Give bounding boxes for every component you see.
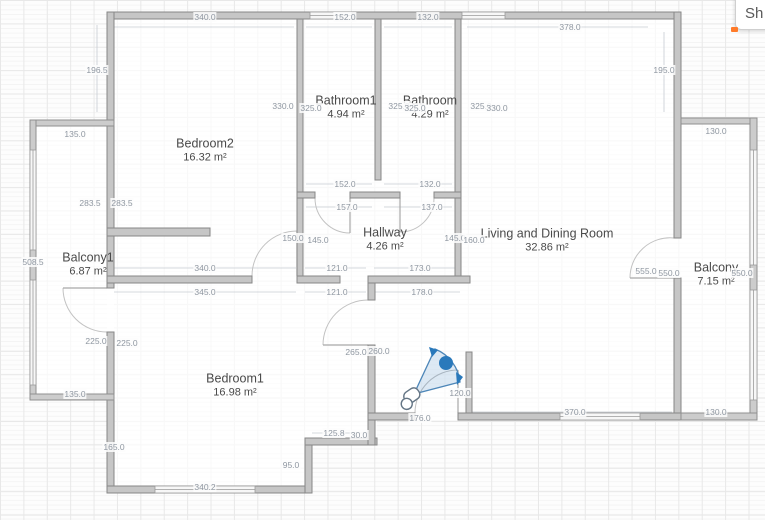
dimension-label[interactable]: 378.0 [558, 22, 581, 32]
dimension-label[interactable]: 137.0 [420, 202, 443, 212]
dimension-label[interactable]: 550.0 [657, 268, 680, 278]
dimension-label[interactable]: 121.0 [325, 263, 348, 273]
dimension-label[interactable]: 330.0 [485, 103, 508, 113]
floorplan-editor-canvas[interactable]: Bedroom2 16.32 m² Bathroom1 4.94 m² Bath… [0, 0, 765, 520]
dimension-label[interactable]: 176.0 [408, 413, 431, 423]
dimension-label[interactable]: 178.0 [410, 287, 433, 297]
dimension-label[interactable]: 125.8 [322, 428, 345, 438]
dimension-label[interactable]: 550.0 [730, 268, 753, 278]
dimension-label[interactable]: 130.0 [704, 126, 727, 136]
dimension-label[interactable]: 135.0 [63, 129, 86, 139]
dimension-label[interactable]: 555.0 [634, 266, 657, 276]
dimension-label[interactable]: 340.2 [193, 482, 216, 492]
share-accent-mark [731, 27, 738, 32]
dimension-label[interactable]: 265.0 [344, 347, 367, 357]
room-name[interactable]: Living and Dining Room [481, 227, 614, 241]
dimension-label[interactable]: 152.0 [333, 12, 356, 22]
room-name[interactable]: Bedroom1 [206, 372, 264, 386]
room-name[interactable]: Bedroom2 [176, 137, 234, 151]
dimension-label[interactable]: 132.0 [416, 12, 439, 22]
dimension-label[interactable]: 340.0 [193, 263, 216, 273]
dimension-label[interactable]: 95.0 [282, 460, 301, 470]
dimension-label[interactable]: 30.0 [350, 430, 369, 440]
room-label[interactable]: Balcony1 6.87 m² [62, 251, 113, 278]
room-label[interactable]: Bathroom1 4.94 m² [315, 94, 376, 121]
dimension-label[interactable]: 370.0 [563, 407, 586, 417]
room-area: 4.94 m² [315, 109, 376, 121]
dimension-label[interactable]: 165.0 [102, 442, 125, 452]
dimension-label[interactable]: 325.0 [403, 103, 426, 113]
dimension-label[interactable]: 173.0 [408, 263, 431, 273]
room-label[interactable]: Bedroom2 16.32 m² [176, 137, 234, 164]
room-name[interactable]: Hallway [363, 226, 407, 240]
dimension-label[interactable]: 225.0 [84, 336, 107, 346]
room-area: 4.26 m² [363, 241, 407, 253]
room-name[interactable]: Bathroom1 [315, 94, 376, 108]
dimension-label[interactable]: 508.5 [21, 257, 44, 267]
share-button-label: Sh [745, 5, 763, 22]
room-label[interactable]: Hallway 4.26 m² [363, 226, 407, 253]
dimension-label[interactable]: 196.5 [85, 65, 108, 75]
share-button[interactable]: Sh [735, 0, 765, 30]
room-label[interactable]: Living and Dining Room 32.86 m² [481, 227, 614, 254]
dimension-label[interactable]: 325.0 [299, 103, 322, 113]
room-name[interactable]: Balcony1 [62, 251, 113, 265]
dimension-label[interactable]: 130.0 [704, 407, 727, 417]
dimension-label[interactable]: 132.0 [418, 179, 441, 189]
room-area: 16.98 m² [206, 387, 264, 399]
floor-footprint [107, 12, 757, 493]
room-area: 16.32 m² [176, 152, 234, 164]
dimension-label[interactable]: 340.0 [193, 12, 216, 22]
dimension-label[interactable]: 150.0 [281, 233, 304, 243]
dimension-label[interactable]: 135.0 [63, 389, 86, 399]
room-area: 6.87 m² [62, 266, 113, 278]
dimension-label[interactable]: 345.0 [193, 287, 216, 297]
dimension-label[interactable]: 157.0 [335, 202, 358, 212]
camera-rotate-handle[interactable] [439, 356, 453, 370]
dimension-label[interactable]: 330.0 [271, 101, 294, 111]
dimension-label[interactable]: 120.0 [448, 388, 471, 398]
room-area: 32.86 m² [481, 242, 614, 254]
dimension-label[interactable]: 260.0 [367, 346, 390, 356]
room-label[interactable]: Bedroom1 16.98 m² [206, 372, 264, 399]
dimension-label[interactable]: 160.0 [462, 235, 485, 245]
dimension-label[interactable]: 225.0 [115, 338, 138, 348]
dimension-label[interactable]: 145.0 [306, 235, 329, 245]
dimension-label[interactable]: 152.0 [333, 179, 356, 189]
dimension-label[interactable]: 195.0 [652, 65, 675, 75]
dimension-label[interactable]: 121.0 [325, 287, 348, 297]
dimension-label[interactable]: 283.5 [78, 198, 101, 208]
dimension-label[interactable]: 283.5 [110, 198, 133, 208]
